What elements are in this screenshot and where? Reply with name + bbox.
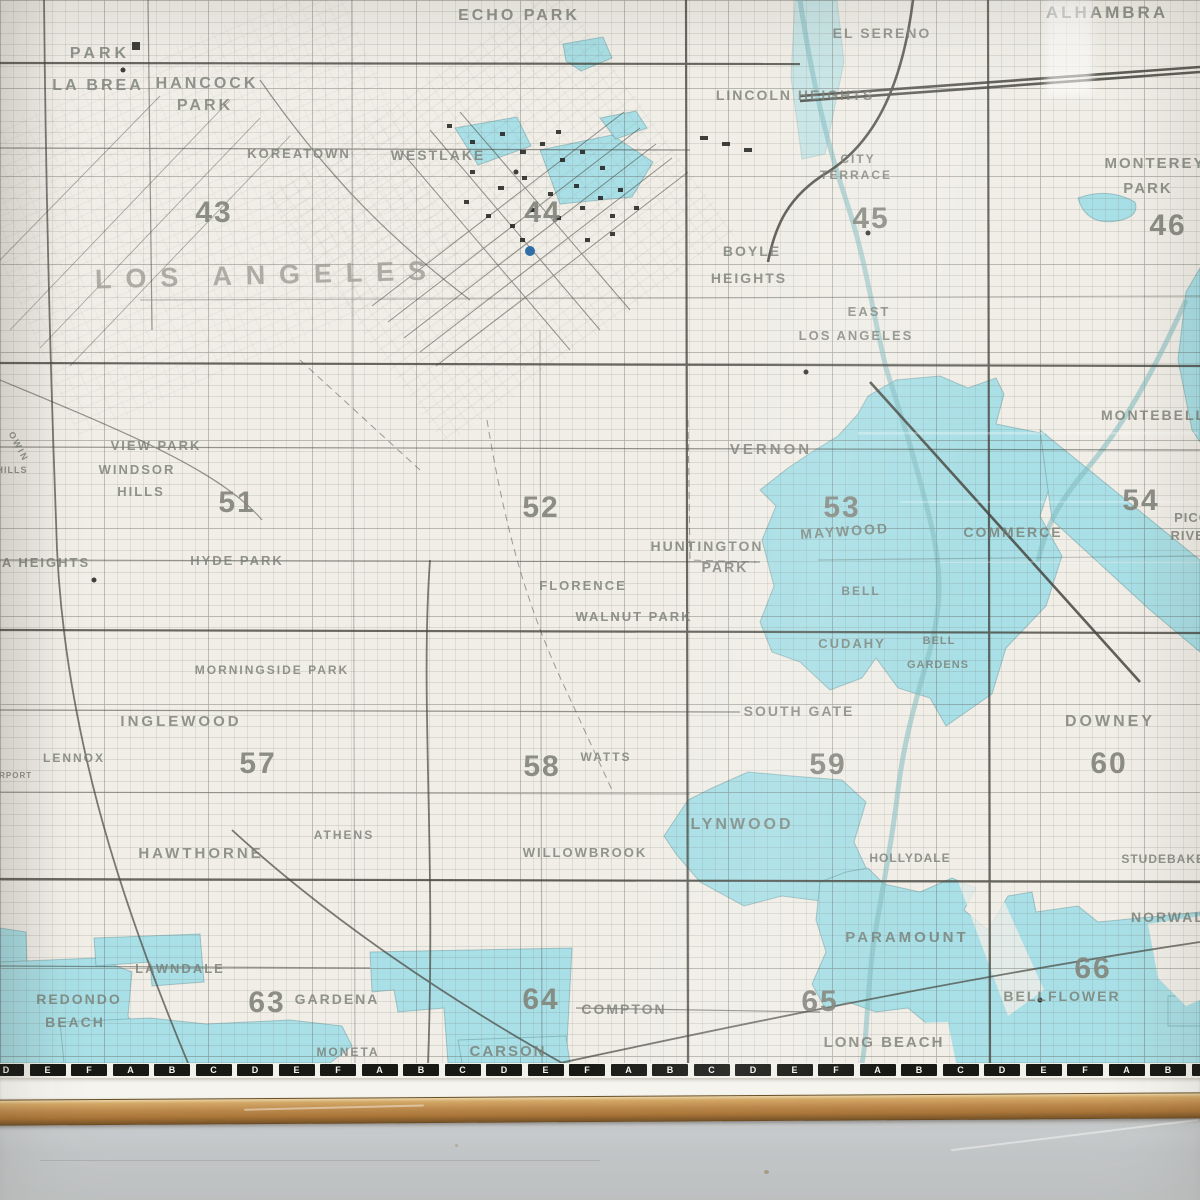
place-label: LOS ANGELES	[799, 328, 914, 343]
place-label: BELL	[841, 584, 880, 598]
ruler-cell: C	[1192, 1064, 1200, 1076]
ruler-cell: D	[486, 1064, 522, 1076]
place-label: MONTEREY	[1104, 155, 1200, 172]
place-label: COMMERCE	[963, 524, 1062, 540]
place-label: MONETA	[316, 1045, 379, 1059]
ruler-cell: E	[528, 1064, 564, 1076]
place-label: LINCOLN HEIGHTS	[716, 87, 874, 103]
place-label: BEACH	[45, 1014, 105, 1030]
ruler-cell: B	[403, 1064, 439, 1076]
ruler-cell: D	[0, 1064, 24, 1076]
place-label: HANCOCK	[156, 75, 259, 92]
wall-scratch	[951, 1119, 1199, 1151]
place-label: EL SERENO	[833, 25, 932, 41]
grid-ruler: DEFABCDEFABCDEFABCDEFABCDEFABC	[0, 1063, 1200, 1078]
place-label: LA BREA	[52, 77, 144, 94]
grid-number: 64	[522, 983, 559, 1016]
place-label: VIEW PARK	[111, 438, 202, 453]
ruler-cell: E	[279, 1064, 315, 1076]
place-label: LONG BEACH	[824, 1034, 945, 1051]
place-label: PARK	[1123, 180, 1172, 197]
ruler-cell: E	[30, 1064, 66, 1076]
ruler-cell: B	[154, 1064, 190, 1076]
grid-number: 57	[239, 747, 276, 780]
grid-number: 52	[522, 491, 559, 524]
place-label: BELL	[923, 635, 956, 647]
grid-number: 43	[195, 196, 232, 229]
framed-la-map-photo: LOS ANGELES PARKLA BREAHANCOCKPARKKOREAT…	[0, 0, 1200, 1200]
place-label: WALNUT PARK	[575, 609, 692, 624]
place-label: HILLS	[0, 465, 28, 475]
ruler-cell: A	[611, 1064, 647, 1076]
grid-number: 45	[852, 202, 889, 235]
place-label: HEIGHTS	[711, 270, 787, 286]
grid-number: 51	[218, 486, 255, 519]
place-label: PARK	[702, 559, 749, 575]
place-label: LENNOX	[43, 751, 105, 765]
ruler-cell: B	[901, 1064, 937, 1076]
ruler-cell: A	[362, 1064, 398, 1076]
grid-number: 66	[1074, 952, 1111, 985]
place-label: FLORENCE	[539, 578, 627, 593]
ruler-cell: F	[71, 1064, 107, 1076]
place-label: INGLEWOOD	[120, 713, 241, 730]
grid-number: 53	[823, 491, 860, 524]
ruler-cell: E	[1026, 1064, 1062, 1076]
water-dot	[525, 246, 535, 256]
place-label: IRPORT	[0, 771, 32, 780]
place-label: DOWNEY	[1065, 713, 1155, 730]
place-label: SOUTH GATE	[744, 703, 855, 719]
wall-speck	[455, 1144, 458, 1147]
ruler-cell: D	[984, 1064, 1020, 1076]
wall-seam	[40, 1160, 600, 1161]
place-label: ECHO PARK	[458, 7, 580, 24]
ruler-cell: C	[694, 1064, 730, 1076]
place-label: RIVERA	[1170, 528, 1200, 543]
ruler-cell: C	[943, 1064, 979, 1076]
place-label: A HEIGHTS	[2, 555, 90, 570]
grid-number: 58	[523, 750, 560, 783]
place-label: PARK	[70, 45, 130, 62]
ruler-cell: A	[1109, 1064, 1145, 1076]
grid-number: 65	[801, 985, 838, 1018]
place-label: TERRACE	[820, 168, 892, 182]
wall-speck	[764, 1170, 769, 1174]
place-label: ATHENS	[314, 828, 374, 842]
grid-number: 54	[1122, 484, 1159, 517]
place-label: CITY	[840, 152, 875, 166]
ruler-cell: F	[818, 1064, 854, 1076]
place-label: VERNON	[730, 441, 812, 458]
glass-glare	[1046, 0, 1092, 96]
ruler-cell: B	[652, 1064, 688, 1076]
place-label: WATTS	[580, 750, 631, 764]
place-label: REDONDO	[36, 991, 122, 1007]
place-label: GARDENA	[295, 991, 380, 1007]
ruler-cell: A	[860, 1064, 896, 1076]
place-label: WILLOWBROOK	[523, 845, 648, 860]
ruler-cell: F	[320, 1064, 356, 1076]
place-label: HAWTHORNE	[138, 845, 263, 862]
ruler-cell: D	[237, 1064, 273, 1076]
ruler-cell: F	[569, 1064, 605, 1076]
ruler-cell: C	[196, 1064, 232, 1076]
place-label: COMPTON	[581, 1001, 666, 1017]
place-label: HYDE PARK	[190, 553, 284, 568]
wall	[0, 1112, 1200, 1200]
grid-number: 60	[1090, 747, 1127, 780]
grid-number: 63	[248, 986, 285, 1019]
ruler-cell: E	[777, 1064, 813, 1076]
place-label: NORWALK	[1131, 909, 1200, 925]
la-street-map: LOS ANGELES PARKLA BREAHANCOCKPARKKOREAT…	[0, 0, 1200, 1063]
place-label: MONTEBELLO	[1101, 407, 1200, 423]
place-label: HOLLYDALE	[869, 851, 950, 865]
place-label: CARSON	[469, 1043, 546, 1060]
ruler-cell: F	[1067, 1064, 1103, 1076]
ruler-cell: C	[445, 1064, 481, 1076]
place-label: PARK	[177, 97, 233, 114]
place-label: PICO	[1174, 510, 1200, 525]
place-label: EAST	[848, 304, 891, 319]
place-label: CUDAHY	[818, 636, 886, 651]
place-label: WINDSOR	[99, 462, 176, 477]
place-label: BELLFLOWER	[1003, 988, 1120, 1004]
place-label: MORNINGSIDE PARK	[195, 663, 349, 677]
place-label: HILLS	[117, 484, 165, 499]
grid-number: 59	[809, 748, 846, 781]
grid-number: 44	[524, 196, 561, 229]
place-label: STUDEBAKER	[1121, 852, 1200, 866]
place-label: LYNWOOD	[690, 816, 793, 833]
place-label: WESTLAKE	[391, 147, 486, 163]
frame-scratch	[244, 1105, 424, 1111]
ruler-cell: A	[113, 1064, 149, 1076]
ruler-cell: B	[1150, 1064, 1186, 1076]
place-label: HUNTINGTON	[650, 538, 763, 554]
map-sheet: LOS ANGELES PARKLA BREAHANCOCKPARKKOREAT…	[0, 0, 1200, 1063]
place-label: BOYLE	[723, 243, 781, 259]
place-label: KOREATOWN	[247, 146, 350, 161]
place-label: GARDENS	[907, 659, 969, 671]
grid-number: 46	[1149, 209, 1186, 242]
place-label: LAWNDALE	[135, 961, 225, 976]
place-label: PARAMOUNT	[845, 929, 968, 946]
ruler-cell: D	[735, 1064, 771, 1076]
